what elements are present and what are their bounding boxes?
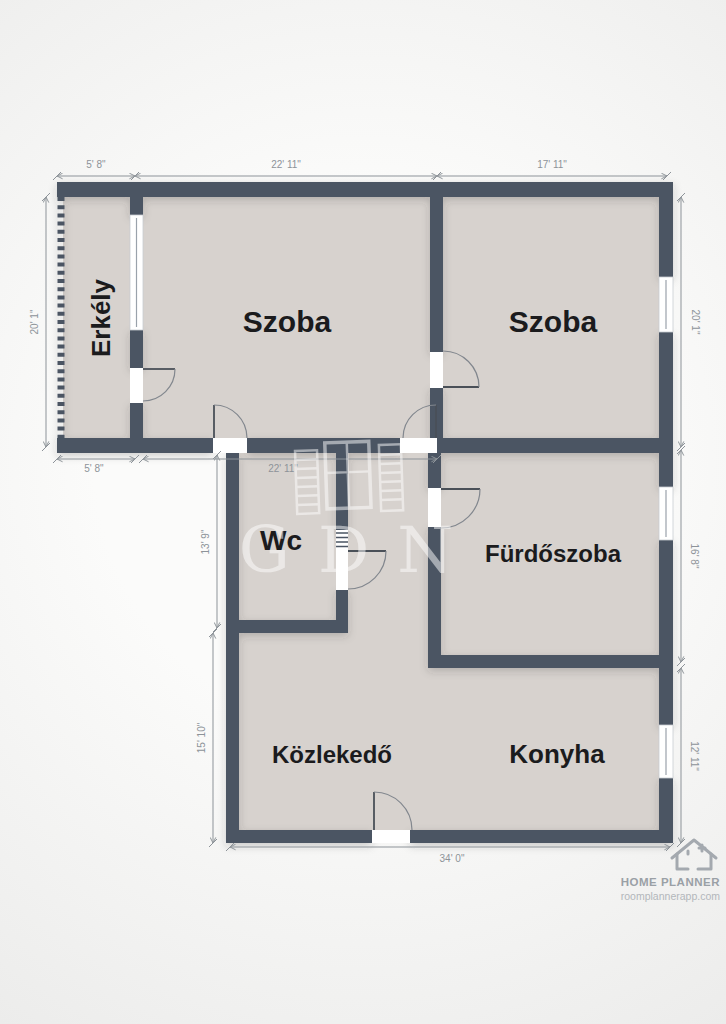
footer-brand: HOME PLANNER	[621, 876, 720, 888]
dim-top-bedroom-left: 22' 11"	[271, 159, 301, 170]
room-label-szoba-right: Szoba	[509, 305, 598, 338]
room-label-kozlekedo: Közlekedő	[272, 741, 392, 768]
room-label-erkely: Erkély	[86, 278, 116, 357]
dim-bottom-width: 34' 0"	[440, 853, 465, 864]
home-planner-icon	[672, 840, 716, 869]
bedroom-window	[659, 277, 673, 332]
dim-inner-balcony: 5' 8"	[84, 463, 104, 474]
dim-top-balcony: 5' 8"	[86, 159, 106, 170]
dim-right-upper: 20' 1"	[690, 310, 701, 335]
dim-top-bedroom-right: 17' 11"	[537, 159, 567, 170]
lower-floor	[239, 453, 659, 830]
kitchen-window	[659, 725, 673, 778]
footer-url: roomplannerapp.com	[621, 890, 720, 902]
dim-inner-bedroom: 22' 11"	[268, 463, 298, 474]
dim-right-middle: 16' 8"	[689, 544, 700, 569]
footer: HOME PLANNER roomplannerapp.com	[621, 840, 721, 902]
room-label-konyha: Konyha	[509, 739, 605, 769]
dim-left-lower: 15' 10"	[196, 722, 207, 753]
dim-left-upper: 20' 1"	[29, 309, 40, 334]
bathroom-window	[659, 487, 673, 540]
room-label-szoba-left: Szoba	[243, 305, 332, 338]
balcony-window	[130, 215, 143, 330]
room-label-furdoszoba: Fürdőszoba	[485, 540, 622, 567]
gdn-watermark-text: GDN	[239, 513, 481, 587]
dim-left-middle: 13' 9"	[200, 529, 211, 554]
dim-right-lower: 12' 11"	[689, 741, 700, 771]
floor-plan-canvas: 5' 8" 22' 11" 17' 11" 5' 8" 22' 11" 34' …	[0, 0, 726, 1024]
